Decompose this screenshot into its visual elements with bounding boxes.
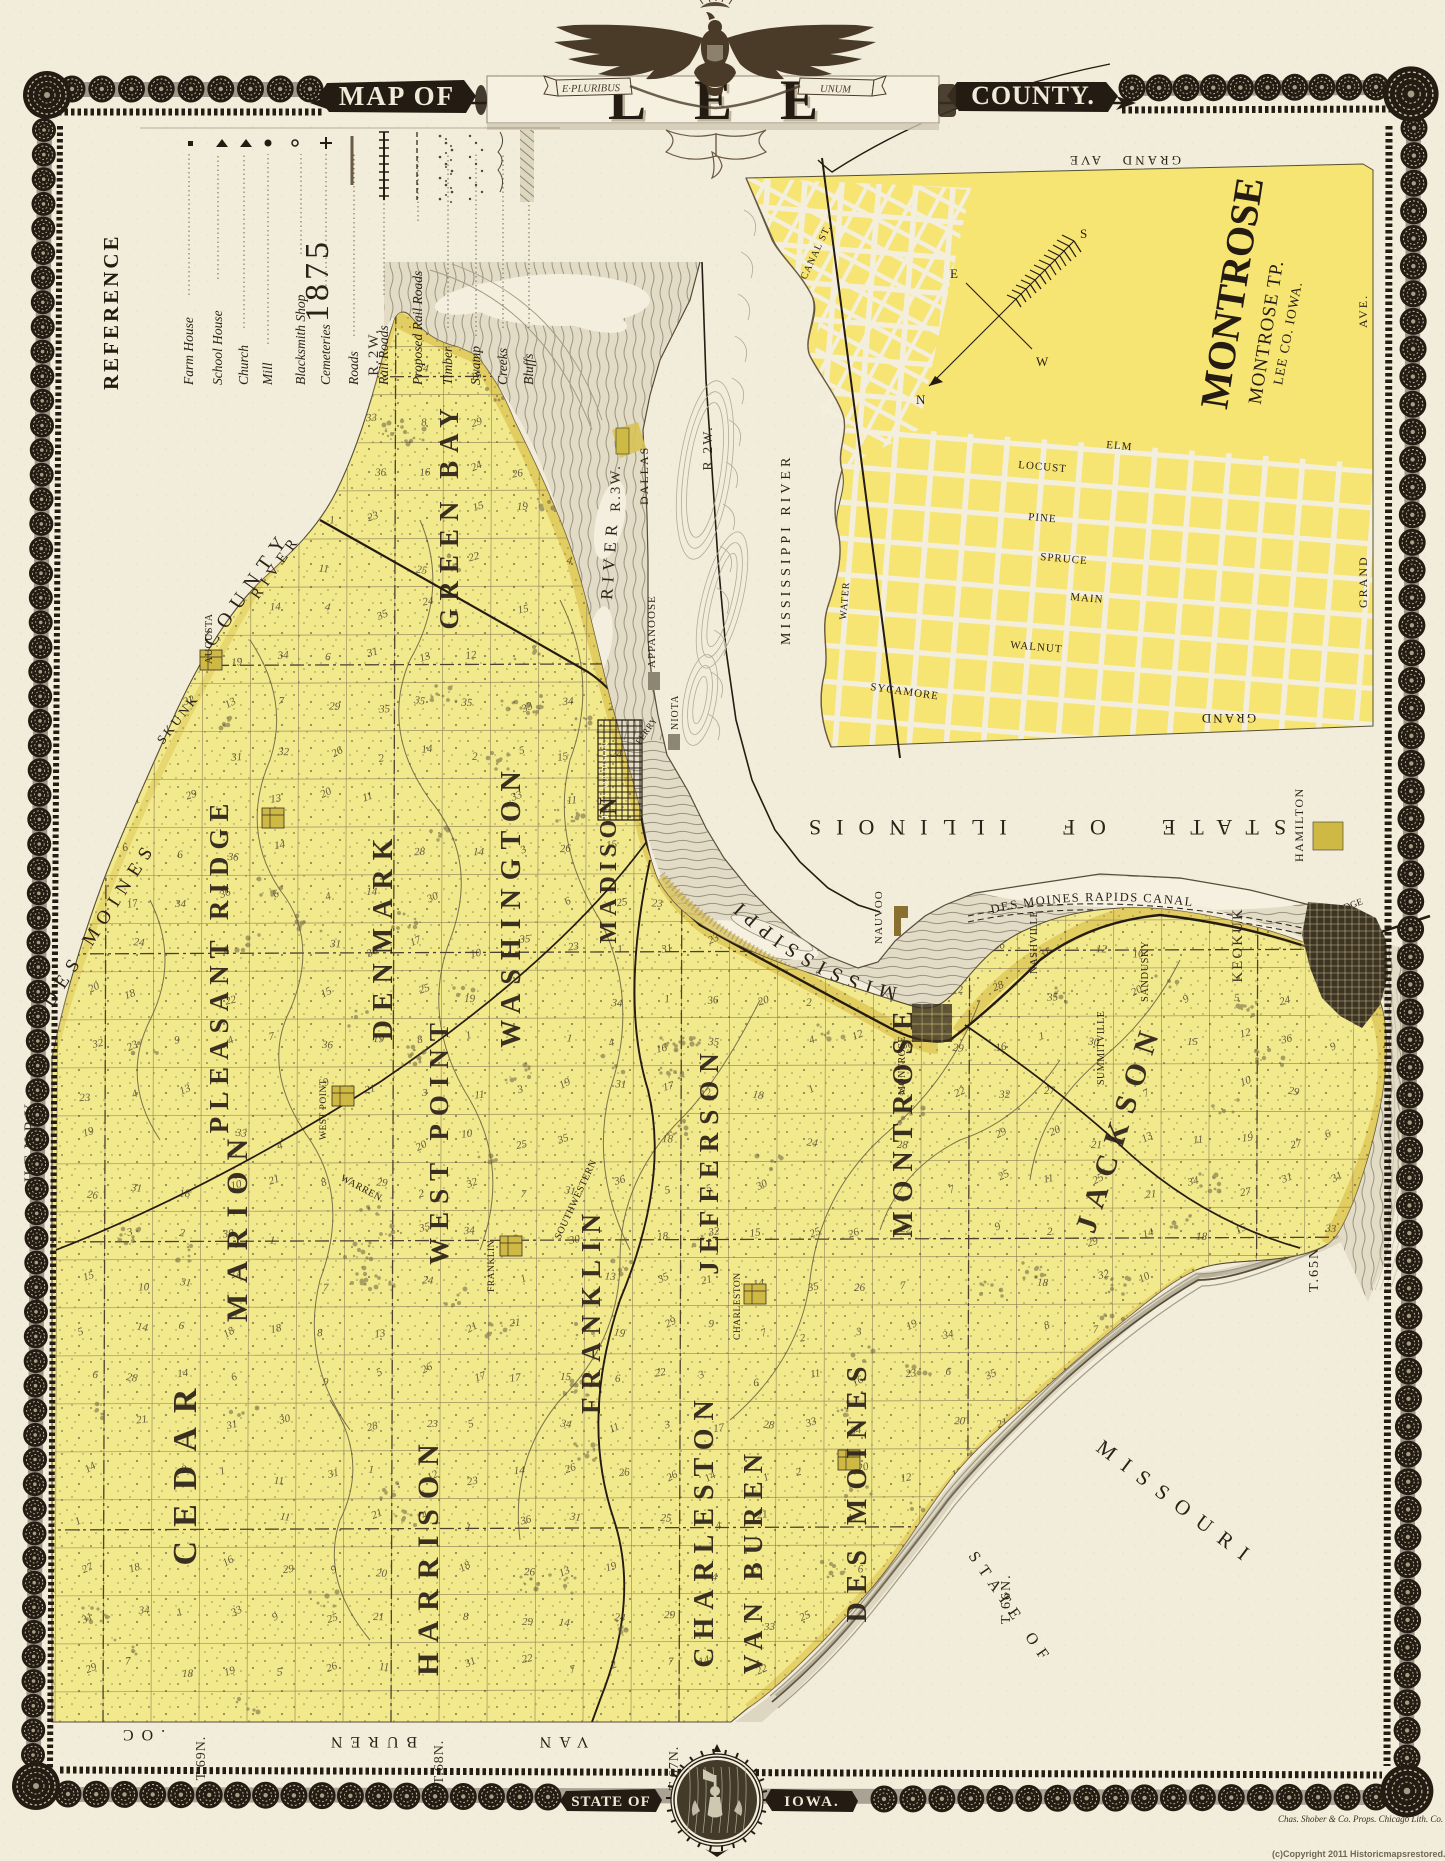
- svg-text:VAN: VAN: [532, 1733, 589, 1750]
- svg-text:36: 36: [374, 466, 387, 478]
- svg-text:.OC: .OC: [115, 1726, 165, 1743]
- svg-text:N: N: [916, 392, 926, 407]
- svg-text:DALLAS: DALLAS: [637, 446, 651, 505]
- svg-text:14: 14: [558, 1617, 571, 1630]
- svg-text:14: 14: [513, 1465, 525, 1478]
- svg-text:18: 18: [1196, 1230, 1208, 1243]
- svg-text:NIOTA: NIOTA: [670, 695, 681, 730]
- svg-text:KEOKUK: KEOKUK: [1230, 907, 1246, 982]
- svg-text:R.2W.: R.2W.: [701, 425, 716, 470]
- svg-text:29: 29: [282, 1563, 295, 1576]
- svg-text:16: 16: [419, 466, 432, 479]
- svg-text:34: 34: [174, 898, 187, 910]
- svg-text:23: 23: [79, 1092, 91, 1104]
- svg-text:35: 35: [378, 703, 391, 716]
- svg-text:11: 11: [1192, 1133, 1203, 1146]
- svg-text:25: 25: [660, 1512, 672, 1525]
- svg-text:18: 18: [662, 1133, 674, 1145]
- svg-text:VAN BUREN: VAN BUREN: [738, 1446, 768, 1674]
- svg-text:T.68N.: T.68N.: [432, 1740, 447, 1785]
- svg-text:21: 21: [136, 1413, 148, 1426]
- svg-text:25: 25: [415, 564, 428, 577]
- svg-text:UNUM: UNUM: [820, 84, 852, 96]
- svg-text:BUREN: BUREN: [323, 1733, 417, 1750]
- svg-text:AVE.: AVE.: [1356, 294, 1370, 328]
- svg-text:26: 26: [524, 1566, 536, 1578]
- svg-text:WASHINGTON: WASHINGTON: [496, 762, 527, 1048]
- svg-text:PINE: PINE: [1028, 511, 1057, 525]
- svg-text:MAP OF: MAP OF: [339, 81, 455, 111]
- svg-text:R.3W.: R.3W.: [608, 464, 624, 512]
- svg-text:6: 6: [615, 1373, 621, 1385]
- svg-text:19: 19: [1241, 1132, 1254, 1145]
- svg-text:29: 29: [664, 1609, 676, 1621]
- svg-text:24: 24: [614, 1611, 627, 1624]
- svg-text:W: W: [1036, 354, 1049, 369]
- svg-text:Creeks: Creeks: [495, 348, 510, 385]
- svg-text:19: 19: [231, 656, 243, 669]
- svg-text:DES MOINES: DES MOINES: [842, 1357, 873, 1622]
- svg-text:Timber: Timber: [440, 346, 455, 385]
- svg-text:(c)Copyright 2011 Historicmaps: (c)Copyright 2011 Historicmapsrestored.c…: [1272, 1849, 1445, 1859]
- svg-text:E·PLURIBUS: E·PLURIBUS: [561, 83, 621, 95]
- svg-text:32: 32: [277, 746, 290, 758]
- svg-text:Bluffs: Bluffs: [521, 353, 536, 385]
- svg-text:APPANOOSE: APPANOOSE: [646, 595, 658, 668]
- svg-text:23: 23: [567, 940, 580, 953]
- svg-text:MARION: MARION: [221, 1128, 254, 1322]
- svg-text:17: 17: [509, 1371, 522, 1384]
- svg-text:10: 10: [461, 1127, 474, 1140]
- svg-text:JEFFERSON: JEFFERSON: [694, 1045, 724, 1275]
- svg-text:Proposed Rail Roads: Proposed Rail Roads: [410, 271, 425, 386]
- svg-text:20: 20: [954, 1415, 966, 1427]
- svg-text:24: 24: [133, 936, 146, 949]
- svg-text:Mill: Mill: [260, 362, 275, 386]
- svg-text:IOWA.: IOWA.: [784, 1794, 839, 1810]
- svg-text:CEDAR: CEDAR: [167, 1375, 204, 1566]
- svg-text:ELM: ELM: [1106, 439, 1133, 453]
- svg-text:18: 18: [1037, 1277, 1049, 1290]
- svg-text:11: 11: [809, 1367, 821, 1381]
- svg-text:10: 10: [138, 1281, 150, 1294]
- svg-text:20: 20: [376, 1567, 388, 1580]
- svg-text:HARRISON: HARRISON: [412, 1434, 445, 1676]
- svg-text:31: 31: [230, 751, 243, 764]
- svg-text:31: 31: [614, 1078, 627, 1091]
- svg-text:WEST POINT: WEST POINT: [319, 1079, 329, 1140]
- svg-text:2: 2: [472, 751, 478, 763]
- svg-text:COUNTY.: COUNTY.: [971, 81, 1095, 110]
- svg-text:23: 23: [651, 897, 663, 910]
- svg-text:35: 35: [412, 694, 426, 708]
- svg-text:Swamp: Swamp: [468, 346, 483, 385]
- svg-text:29: 29: [522, 1616, 534, 1628]
- svg-text:18: 18: [657, 1230, 670, 1243]
- svg-text:GRAND: GRAND: [1356, 555, 1370, 608]
- svg-text:29: 29: [376, 1176, 389, 1189]
- svg-text:18: 18: [752, 1089, 765, 1102]
- svg-text:14: 14: [421, 743, 434, 756]
- svg-text:21: 21: [1145, 1188, 1157, 1201]
- svg-text:11: 11: [474, 1089, 485, 1102]
- svg-text:Blacksmith Shop: Blacksmith Shop: [293, 294, 308, 385]
- svg-text:WEST POINT: WEST POINT: [424, 1015, 454, 1265]
- svg-text:31: 31: [178, 1276, 192, 1290]
- svg-text:CHARLESTON: CHARLESTON: [689, 1392, 720, 1668]
- svg-text:13: 13: [374, 1327, 387, 1340]
- svg-text:29: 29: [329, 700, 341, 713]
- svg-text:Roads: Roads: [346, 351, 361, 386]
- svg-text:15: 15: [749, 1226, 762, 1239]
- svg-text:T.66N.: T.66N.: [999, 1573, 1014, 1624]
- svg-text:School House: School House: [210, 310, 225, 385]
- svg-text:29: 29: [952, 1042, 965, 1055]
- svg-text:14: 14: [473, 846, 485, 858]
- svg-text:7: 7: [323, 1282, 329, 1294]
- svg-text:NAUVOO: NAUVOO: [873, 890, 885, 944]
- svg-text:23: 23: [427, 1418, 439, 1430]
- svg-text:34: 34: [276, 649, 289, 662]
- svg-text:14: 14: [270, 601, 282, 613]
- svg-text:T.69N.: T.69N.: [194, 1736, 209, 1781]
- svg-text:REFERENCE: REFERENCE: [99, 233, 123, 390]
- svg-text:1: 1: [368, 1464, 374, 1476]
- svg-text:11: 11: [274, 1475, 285, 1487]
- svg-text:28: 28: [763, 1419, 776, 1432]
- svg-text:33: 33: [1324, 1223, 1337, 1235]
- svg-text:18: 18: [182, 1668, 194, 1680]
- svg-text:2: 2: [1047, 1226, 1053, 1238]
- svg-text:19: 19: [464, 993, 476, 1005]
- svg-text:8: 8: [463, 1611, 469, 1623]
- svg-text:32: 32: [998, 1088, 1011, 1100]
- svg-text:23: 23: [905, 1367, 918, 1380]
- svg-text:5: 5: [1234, 992, 1240, 1004]
- svg-text:34: 34: [137, 1604, 150, 1616]
- svg-text:NASHVILLE: NASHVILLE: [1029, 911, 1040, 974]
- svg-text:11: 11: [379, 1661, 389, 1673]
- svg-text:11: 11: [279, 1511, 291, 1524]
- svg-text:16: 16: [995, 1041, 1008, 1054]
- svg-text:Farm House: Farm House: [181, 317, 196, 386]
- svg-text:21: 21: [509, 1317, 521, 1330]
- svg-text:DENMARK: DENMARK: [368, 830, 399, 1041]
- svg-text:2: 2: [806, 997, 812, 1009]
- svg-text:27: 27: [1044, 1085, 1056, 1097]
- svg-text:34: 34: [561, 695, 574, 708]
- svg-text:MISSISSIPPI RIVER: MISSISSIPPI RIVER: [779, 454, 794, 645]
- svg-text:26: 26: [86, 1189, 99, 1202]
- svg-text:34: 34: [559, 1417, 573, 1431]
- svg-text:11: 11: [566, 794, 577, 807]
- svg-text:19: 19: [517, 501, 529, 513]
- svg-text:14: 14: [273, 839, 286, 852]
- svg-text:Rail Roads: Rail Roads: [376, 325, 391, 386]
- svg-text:MONTROSE: MONTROSE: [888, 1002, 919, 1237]
- svg-text:11: 11: [318, 563, 329, 576]
- svg-text:E: E: [950, 266, 958, 281]
- svg-text:Church: Church: [236, 345, 251, 385]
- svg-text:FRANKLIN: FRANKLIN: [576, 1206, 606, 1414]
- svg-text:12: 12: [465, 649, 478, 662]
- svg-text:31: 31: [129, 1182, 142, 1195]
- svg-text:GRAND AVE: GRAND AVE: [1067, 153, 1181, 168]
- svg-text:18: 18: [179, 1188, 191, 1200]
- svg-text:1: 1: [465, 1522, 472, 1534]
- svg-text:SANDUSKY: SANDUSKY: [1140, 941, 1151, 1002]
- svg-text:35: 35: [1046, 991, 1059, 1004]
- svg-text:36: 36: [321, 1039, 334, 1051]
- svg-text:12: 12: [1096, 943, 1108, 955]
- svg-text:15: 15: [560, 1371, 572, 1383]
- svg-text:1: 1: [329, 514, 336, 526]
- svg-text:STATE OF ILLINOIS: STATE OF ILLINOIS: [794, 815, 1286, 840]
- svg-text:7: 7: [668, 1656, 674, 1668]
- svg-text:21: 21: [373, 1611, 384, 1623]
- svg-text:31: 31: [329, 938, 341, 950]
- svg-text:24: 24: [806, 1136, 819, 1149]
- svg-text:GRAND: GRAND: [1200, 711, 1256, 726]
- svg-text:MADISON: MADISON: [596, 792, 622, 943]
- svg-text:26: 26: [618, 1466, 631, 1479]
- svg-text:STATE OF: STATE OF: [571, 1794, 651, 1810]
- svg-text:34: 34: [462, 1225, 475, 1238]
- svg-text:HAMILTON: HAMILTON: [1292, 787, 1306, 862]
- svg-text:Cemeteries: Cemeteries: [318, 324, 333, 385]
- svg-text:35: 35: [460, 697, 473, 710]
- svg-text:36: 36: [706, 994, 720, 1007]
- svg-text:Chas. Shober & Co. Props. Chic: Chas. Shober & Co. Props. Chicago Lith. …: [1278, 1814, 1443, 1824]
- svg-text:31: 31: [659, 942, 673, 956]
- svg-text:31: 31: [568, 1511, 581, 1524]
- svg-text:PLEASANT RIDGE: PLEASANT RIDGE: [204, 797, 234, 1134]
- svg-text:GREEN BAY: GREEN BAY: [434, 400, 464, 629]
- svg-text:S: S: [1080, 226, 1087, 241]
- svg-text:28: 28: [414, 846, 426, 858]
- svg-text:CHARLESTON: CHARLESTON: [733, 1272, 743, 1340]
- svg-text:24: 24: [422, 1274, 435, 1287]
- svg-text:SUMMITVILLE: SUMMITVILLE: [1096, 1011, 1107, 1085]
- svg-text:26: 26: [560, 843, 572, 856]
- svg-text:26: 26: [854, 1282, 866, 1294]
- svg-text:15: 15: [1187, 1036, 1199, 1048]
- svg-text:34: 34: [610, 997, 623, 1010]
- svg-text:FRANKLIN: FRANKLIN: [487, 1240, 497, 1292]
